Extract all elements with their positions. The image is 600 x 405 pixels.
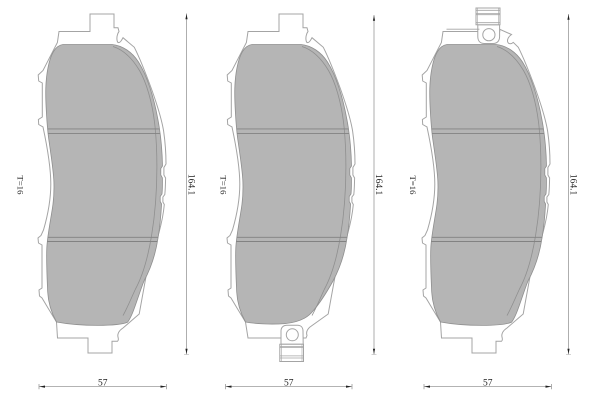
svg-text:164.1: 164.1 — [186, 174, 196, 196]
svg-text:T=16: T=16 — [16, 176, 26, 196]
svg-text:164.1: 164.1 — [568, 174, 578, 196]
svg-text:164.1: 164.1 — [373, 174, 383, 196]
svg-text:T=16: T=16 — [408, 176, 418, 196]
svg-text:T=16: T=16 — [219, 176, 229, 196]
svg-text:57: 57 — [483, 379, 493, 389]
svg-text:57: 57 — [284, 379, 294, 389]
svg-text:57: 57 — [98, 379, 108, 389]
